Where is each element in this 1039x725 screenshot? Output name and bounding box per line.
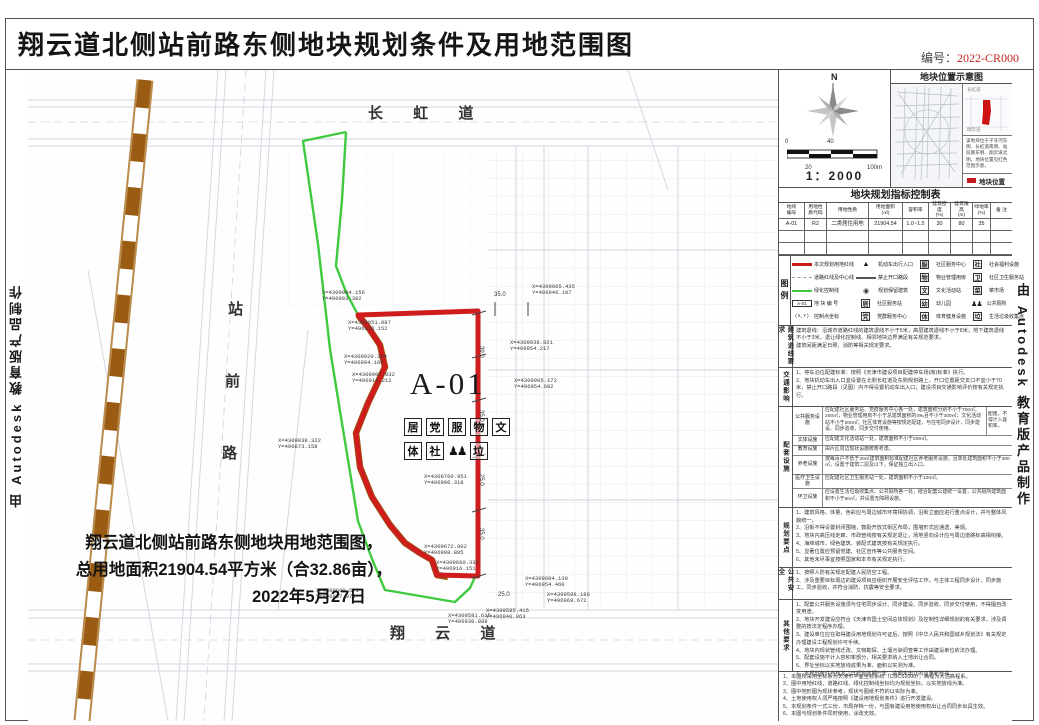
section-facilities: 配套设施 公共服务设施 应配建社区服务站、党群服务中心各一处，建筑面积分别不小于…	[779, 407, 1012, 509]
table-cell	[929, 231, 951, 243]
legend-symbol-icon: 居	[861, 299, 870, 308]
note-line: 1、建筑风格、体量、色彩应与周边城市环境相协调，沿街立面应进行重点设计，并与整体…	[796, 510, 1009, 525]
section-safety: 公共安全 1、按照人防有关规定配建人民防空工程。2、涉及重要目标周边的建设项目应…	[779, 568, 1012, 600]
scale-bar	[787, 148, 883, 164]
note-line: 2、地块开发建设应符合《天津市国土空间总体规划》及控制性详细规划的有关要求，涉及…	[796, 617, 1009, 632]
coordinate-label: X=4309672.902Y=496908.885	[424, 544, 467, 557]
footnotes: 1、本图所采用坐标系为天津市平面坐标系统（CGCS2000），高程为大沽高程系。…	[779, 672, 1012, 721]
facility-row-text: 应设置生活垃圾收集点、公共厕所各一处，结合配套公建统一设置，公共厕所建筑面积不小…	[823, 489, 1012, 507]
site-note-line1: 翔云道北侧站前路东侧地块用地范围图，	[66, 530, 402, 557]
table-header-cell: 用地性质	[827, 203, 869, 219]
coordinate-label: X=4309581.615Y=496930.888	[448, 613, 491, 626]
section-traffic: 交通影响 1、停车泊位配建标准：按照《天津市建设项目配建停车场(库)标准》执行。…	[779, 368, 1012, 407]
legend-symbol-icon: 物	[920, 273, 929, 282]
scale-tick-0: 0	[785, 139, 788, 145]
note-line: 4、地块内现状管线迁改、文物勘探、土壤污染调查等工作由建设单位依法办理。	[796, 648, 1009, 655]
mini-map-road-bottom: 翔云道	[967, 127, 981, 133]
coordinate-label: X=4309964.156Y=496903.302	[322, 290, 365, 303]
legend-item: 党党群服务中心	[856, 310, 913, 323]
legend-item: ▲机动车出行入口	[856, 258, 913, 271]
table-header-cell: 绿地率 (%)	[973, 203, 991, 219]
legend-item: ♟♟公共厕所	[968, 297, 1024, 310]
location-mini-map: 长虹道 翔云道	[963, 84, 1012, 136]
table-title: 地块规划指标控制表	[779, 188, 1012, 203]
toilet-icon: ♟♟	[448, 444, 466, 458]
legend-symbol-icon: ▲	[856, 260, 876, 270]
legend-item: 物物业管理用房	[915, 271, 966, 284]
legend-symbol-icon: 服	[920, 260, 929, 269]
dimension-label: 39.0	[478, 346, 484, 358]
table-cell: 35	[973, 219, 991, 231]
facility-row-text: 应配建社区服务站、党群服务中心各一处，建筑面积分别不小于700㎡、200㎡；物业…	[823, 407, 986, 435]
legend-column-1: 本次规划用地红线道路红线及中心线绿化控制线A-01地 块 编 号(X,Y)控制点…	[791, 256, 855, 325]
note-line: 1、配套公共服务设施须与住宅同步设计、同步建设、同步验收、同步交付使用，不得擅自…	[796, 602, 1009, 617]
coordinate-label: X=4309585.415Y=496940.863	[486, 608, 529, 621]
autodesk-credit-left: 由 Autodesk 教育版产品制作	[7, 283, 26, 507]
note-line: 2、地块机动车出入口宜设置在北侧长虹道及东侧规划路上，开口位置距交叉口不宜小于7…	[796, 378, 1009, 400]
legend-item: 社社会福利设施	[968, 258, 1024, 271]
dimension-label: 35.0	[494, 292, 506, 298]
legend-symbol-icon	[792, 263, 812, 266]
legend-item: 幼幼儿园	[915, 297, 966, 310]
coordinate-label: X=4309604.130Y=496954.460	[525, 576, 568, 589]
facility-icon: 服	[448, 418, 466, 436]
table-header-cell: 建筑密度 (%)	[929, 203, 951, 219]
site-note-block: 翔云道北侧站前路东侧地块用地范围图， 总用地面积21904.54平方米（合32.…	[66, 530, 402, 611]
legend-symbol-icon: 菜	[973, 286, 982, 295]
table-cell	[805, 231, 827, 243]
index-control-table: 地块规划指标控制表 地块 编号用地性 质代码用地性质用地面积 (㎡)容积率建筑密…	[779, 188, 1012, 256]
facility-icons-row1: 居党服物文	[404, 418, 510, 436]
table-cell	[951, 243, 973, 255]
table-cell	[973, 231, 991, 243]
table-cell	[991, 219, 1012, 231]
note-line: 1、停车泊位配建标准：按照《天津市建设项目配建停车场(库)标准》执行。	[796, 370, 1009, 377]
table-cell: 1.0~1.5	[903, 219, 929, 231]
legend-item: 绿化控制线	[792, 284, 854, 297]
legend-symbol-icon: 社	[973, 260, 982, 269]
legend-symbol-icon	[792, 290, 812, 292]
table-cell	[951, 231, 973, 243]
table-header-cell: 建筑限高 (m)	[951, 203, 973, 219]
dimension-label: 25.0	[498, 592, 510, 598]
coordinate-label: X=4309905.172Y=496954.682	[514, 378, 557, 391]
legend-column-3: 服社区服务中心物物业管理用房文文化活动站幼幼儿园体体育健身设施	[914, 256, 967, 325]
legend-box: 图例 本次规划用地红线道路红线及中心线绿化控制线A-01地 块 编 号(X,Y)…	[779, 256, 1012, 326]
table-data-row: A-01R2二类居住用地21904.541.0~1.5308035	[779, 219, 1012, 231]
facility-icon: 文	[492, 418, 510, 436]
dimension-label: 25.0	[478, 474, 484, 486]
legend-item: ◉规划保留建筑	[856, 284, 913, 297]
legend-column-4: 社社会福利设施卫社区卫生服务站菜菜市场♟♟公共厕所垃生活垃圾收集点	[967, 256, 1025, 325]
planning-drawing-sheet: { "colors":{"accent_red":"#c2271d","boun…	[0, 0, 1039, 725]
table-cell	[827, 231, 869, 243]
coordinate-label: X=4309938.921Y=496954.217	[510, 340, 553, 353]
legend-item: 禁止开口路段	[856, 271, 913, 284]
info-panel: N 0 40 20	[778, 70, 1012, 721]
legend-symbol-icon: A-01	[792, 300, 812, 307]
legend-item: 菜菜市场	[968, 284, 1024, 297]
legend-symbol-icon: 幼	[920, 299, 929, 308]
table-cell: 二类居住用地	[827, 219, 869, 231]
table-header-cell: 用地性 质代码	[805, 203, 827, 219]
legend-symbol-icon: 文	[920, 286, 929, 295]
legend-item: 垃生活垃圾收集点	[968, 310, 1024, 323]
parcel-id-label: A-01	[410, 366, 486, 402]
legend-symbol-icon	[856, 277, 876, 279]
note-line: 4、海绵城市、绿色建筑、装配式建筑按有关规定执行。	[796, 541, 1009, 548]
table-cell	[869, 231, 903, 243]
parcel-location-swatch	[967, 178, 976, 183]
facility-row-label: 教育设施	[793, 446, 823, 455]
coordinate-label: X=4309598.186Y=496969.672	[547, 592, 590, 605]
doc-number-label: 编号：	[921, 51, 957, 65]
section-other: 其他要求 1、配套公共服务设施须与住宅同步设计、同步建设、同步验收、同步交付使用…	[779, 600, 1012, 672]
doc-number: 编号：2022-CR000	[921, 49, 1019, 66]
facility-row-text: 应配建社区卫生服务站一处，建筑面积不小于120㎡。	[823, 475, 1012, 489]
left-credit-strip: 由 Autodesk 教育版产品制作	[5, 70, 29, 720]
coordinate-label: X=4309660.332Y=496916.151	[436, 560, 479, 573]
coordinate-label: X=4309920.304Y=496904.106	[344, 354, 387, 367]
dimension-label: 35.0	[478, 528, 484, 540]
coordinate-label: X=4309838.322Y=496873.158	[278, 438, 321, 451]
table-cell: 30	[929, 219, 951, 231]
coordinate-label: X=4309951.087Y=496916.152	[348, 320, 391, 333]
scale-tick-40: 40	[827, 139, 834, 145]
table-cell: R2	[805, 219, 827, 231]
section-label: 交通影响	[781, 371, 790, 403]
legend-symbol-icon: ♟♟	[971, 300, 982, 308]
table-cell	[973, 243, 991, 255]
facility-row-label: 医疗卫生设施	[793, 475, 823, 489]
note-line: 5、配套设施不计入容积率部分，相关要求纳入土地出让合同。	[796, 655, 1009, 662]
section-design: 规划要点 1、建筑风格、体量、色彩应与周边城市环境相协调，沿街立面应进行重点设计…	[779, 508, 1012, 568]
footnote-line: 4、土地使用权人须严格按照《建设用地规划条件》进行开发建设。	[783, 696, 1008, 704]
legend-column-2: ▲机动车出行入口禁止开口路段◉规划保留建筑居社区服务站党党群服务中心	[855, 256, 914, 325]
doc-number-value: 2022-CR000	[957, 51, 1019, 65]
table-cell	[929, 243, 951, 255]
table-cell	[991, 231, 1012, 243]
legend-symbol-icon: ◉	[856, 286, 876, 296]
table-cell: A-01	[779, 219, 805, 231]
location-diagram-title: 地块位置示意图	[891, 70, 1012, 84]
legend-item: 本次规划用地红线	[792, 258, 854, 271]
section-label: 配套设施	[781, 441, 790, 473]
city-map-sketch	[891, 84, 963, 182]
table-cell: 80	[951, 219, 973, 231]
legend-item: 居社区服务站	[856, 297, 913, 310]
scale-ratio: 1：2000	[779, 167, 890, 184]
note-line: 2、沿街不得设置封闭围墙，鼓励开放式街区布局；围墙形式应通透、美观。	[796, 525, 1009, 532]
legend-item: 体体育健身设施	[915, 310, 966, 323]
note-line: 2、涉及重要目标周边的建设项目应组织开展安全评估工作，与主体工程同步设计、同步施…	[796, 578, 1009, 593]
table-cell	[805, 243, 827, 255]
table-cell: 21904.54	[869, 219, 903, 231]
road-label-char: 站	[228, 298, 243, 319]
note-line: 1、按照人防有关规定配建人民防空工程。	[796, 570, 1009, 577]
compass-scale-box: N 0 40 20	[779, 70, 891, 187]
table-cell	[903, 231, 929, 243]
facility-row-label: 养老设施	[793, 456, 823, 474]
table-cell	[991, 243, 1012, 255]
facility-icons-row2: 体社 ♟♟ 垃	[404, 442, 488, 460]
site-note-line3: 2022年5月27日	[66, 584, 402, 611]
table-cell	[869, 243, 903, 255]
legend-item: 卫社区卫生服务站	[968, 271, 1024, 284]
section-label: 公共安全	[777, 568, 795, 599]
facility-row-text: 应配建文化活动站一处，建筑面积不小于200㎡。	[823, 436, 1012, 445]
section-label: 规划要点	[781, 522, 790, 554]
legend-title: 图例	[779, 279, 790, 303]
table-header-cell: 用地面积 (㎡)	[869, 203, 903, 219]
legend-item: 道路红线及中心线	[792, 271, 854, 284]
table-header-cell: 容积率	[903, 203, 929, 219]
right-credit-strip: 由 Autodesk 教育版产品制作	[1010, 70, 1034, 720]
facility-row-note: 配建，不得计入容积率。	[986, 407, 1012, 435]
note-line: 建筑间距满足日照、消防等相关规定要求。	[796, 343, 1009, 350]
road-label-char: 前	[225, 370, 240, 391]
table-header-row: 地块 编号用地性 质代码用地性质用地面积 (㎡)容积率建筑密度 (%)建筑限高 …	[779, 203, 1012, 219]
table-empty-row	[779, 231, 1012, 243]
location-legend: 地块位置	[963, 174, 1012, 187]
table-cell	[827, 243, 869, 255]
table-header-cell: 备 注	[991, 203, 1012, 219]
note-line: 建筑退线：沿城市道路红线的建筑退线不小于5米，高层建筑退线不小于8米；地下建筑退…	[796, 328, 1009, 343]
site-plan-map: 长 虹 道 翔 云 道 站前路 A-01 居党服物文 体社 ♟♟ 垃 X=430…	[28, 70, 778, 721]
table-cell	[903, 243, 929, 255]
coordinate-label: X=4309907.832Y=496916.212	[352, 372, 395, 385]
table-empty-row	[779, 243, 1012, 255]
facility-icon: 社	[426, 442, 444, 460]
legend-symbol-icon: 体	[920, 312, 929, 321]
parcel-location-label: 地块位置	[979, 176, 1005, 186]
note-line: 6、其他未尽事宜按照国家和本市有关规定执行。	[796, 557, 1009, 564]
section-label: 建筑退线要求	[777, 326, 795, 367]
railway-line	[82, 80, 145, 721]
table-cell	[779, 231, 805, 243]
facility-row-label: 公共服务设施	[793, 407, 823, 435]
road-label-changhong: 长 虹 道	[368, 102, 486, 123]
facility-icon: 垃	[470, 442, 488, 460]
legend-item: 文文化活动站	[915, 284, 966, 297]
facility-row-text: 按每百户不低于30㎡建筑面积标准配建社区养老服务设施，且单处建筑面积不小于300…	[823, 456, 1012, 474]
legend-item: 服社区服务中心	[915, 258, 966, 271]
legend-symbol-icon: 卫	[973, 273, 982, 282]
site-note-line2: 总用地面积21904.54平方米（合32.86亩），	[66, 557, 402, 584]
location-city-map	[891, 84, 963, 187]
legend-item: (X,Y)控制点坐标	[792, 310, 854, 323]
note-line: 3、建设单位应在取得建设用地规划许可证后，按照《中华人民共和国城乡规划法》有关规…	[796, 632, 1009, 647]
title-bar: 翔云道北侧站前路东侧地块规划条件及用地范围图 编号：2022-CR000	[6, 19, 1033, 70]
coordinate-label: X=4309760.951Y=496906.318	[424, 474, 467, 487]
table-header-cell: 地块 编号	[779, 203, 805, 219]
facility-row-label: 文体设施	[793, 436, 823, 445]
legend-symbol-icon: 垃	[973, 312, 982, 321]
legend-item: A-01地 块 编 号	[792, 297, 854, 310]
dimension-label: 35.0	[478, 410, 484, 422]
facility-row-label: 环卫设施	[793, 489, 823, 507]
legend-symbol-icon: (X,Y)	[792, 312, 812, 322]
road-label-char: 路	[222, 442, 237, 463]
facility-row-text: 由片区周边现状设施统筹考虑。	[823, 446, 1012, 455]
coordinate-label: X=4309965.435Y=496946.107	[532, 284, 575, 297]
legend-symbol-icon	[792, 277, 812, 278]
facility-icon: 体	[404, 442, 422, 460]
facility-icon: 党	[426, 418, 444, 436]
page-title: 翔云道北侧站前路东侧地块规划条件及用地范围图	[18, 25, 634, 62]
legend-symbol-icon: 党	[861, 312, 870, 321]
location-diagram-box: 地块位置示意图 长虹道	[891, 70, 1012, 187]
table-cell	[779, 243, 805, 255]
location-caption: 该地块位于子牙河东侧、长虹道南侧、站前路东侧、翔云道北侧，地块位置见红色范围示意…	[963, 136, 1012, 174]
note-line: 3、地块内高压线走廊、市政管线按有关规定退让，场地竖向设计应与周边道路标高相衔接…	[796, 533, 1009, 540]
note-line: 6、界址坐标以实地放线成果为准，面积以实测为准。	[796, 663, 1009, 670]
section-setback: 建筑退线要求 建筑退线：沿城市道路红线的建筑退线不小于5米，高层建筑退线不小于8…	[779, 326, 1012, 368]
compass-rose-icon	[801, 80, 865, 142]
footnote-line: 6、本图与规划条件同时使用，涂改无效。	[783, 711, 1008, 719]
footnote-line: 2、图中用地红线、道路红线、绿化控制线坐标均为规划坐标，以实地放线为准。	[783, 681, 1008, 689]
section-label: 其他要求	[781, 620, 790, 652]
note-line: 5、显著位置应预留党建、社区宣传等公共服务空间。	[796, 549, 1009, 556]
facility-icon: 居	[404, 418, 422, 436]
